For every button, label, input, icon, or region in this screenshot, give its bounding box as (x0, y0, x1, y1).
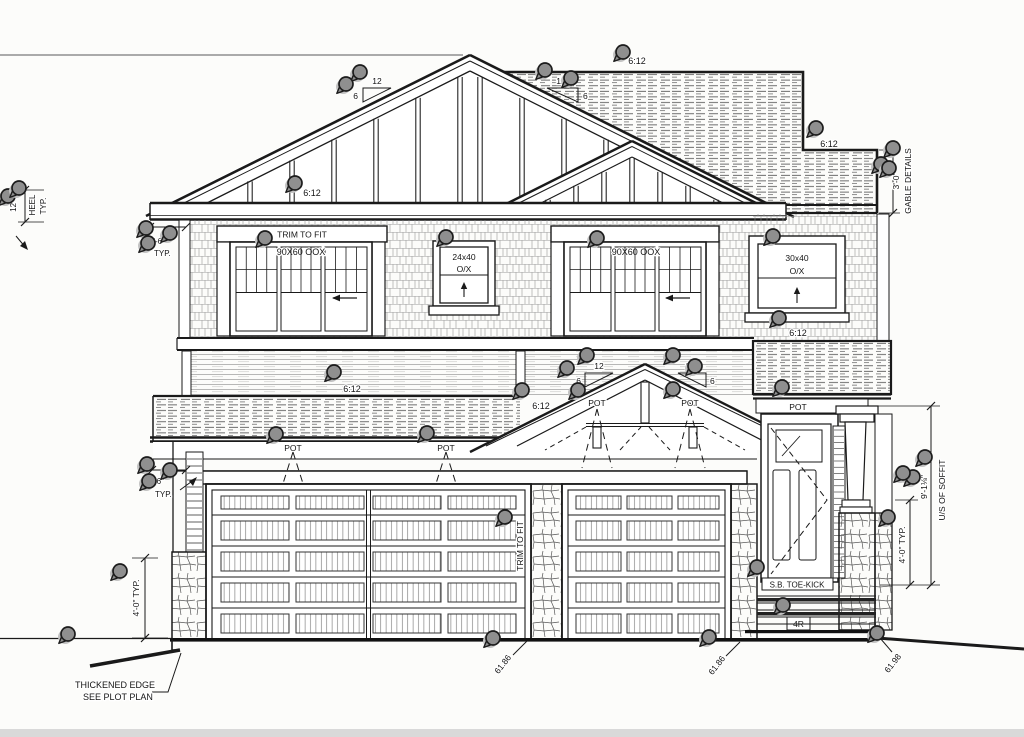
dimension-label: 4'-0" TYP. (131, 580, 141, 617)
window-size-label: 90X60 OOX (612, 247, 661, 257)
pitch-label: 6:12 (789, 328, 807, 338)
eave-fascia-band (150, 203, 786, 220)
window-30x40: 30x40 O/X (745, 236, 849, 322)
trim-to-fit-label-vertical: TRIM TO FIT (515, 521, 525, 571)
typ-label: TYP. (39, 198, 48, 215)
slope-rise-label: 6 (583, 91, 588, 101)
slope-run-label: 12 (372, 76, 382, 86)
floor-band (177, 338, 754, 350)
blueprint-canvas: 6:12 6:12 3'-0" GABLE DETAILS 6:12 12 6 … (0, 0, 1024, 737)
dimension-label: 4'-0" TYP. (897, 527, 907, 564)
garage-door-double[interactable] (206, 484, 531, 639)
bottom-edge-strip (0, 729, 1024, 737)
window-size-label: 24x40 (452, 252, 475, 262)
slope-run-label: 12 (594, 361, 604, 371)
pot-light-label: POT (437, 443, 454, 453)
window-left: TRIM TO FIT 90X60 OOX (217, 226, 387, 336)
pitch-label: 6:12 (532, 401, 550, 411)
window-24x40: 24x40 O/X (429, 241, 499, 315)
corner-board-right (877, 214, 889, 341)
pot-light-label: POT (284, 443, 301, 453)
pot-light-label: POT (789, 402, 806, 412)
pitch-label: 6:12 (820, 139, 838, 149)
pitch-label: 6:12 (303, 188, 321, 198)
window-size-label: 30x40 (785, 253, 808, 263)
corner-board-left (179, 220, 190, 338)
toe-kick-note: S.B. TOE-KICK (762, 578, 833, 590)
window-operation-label: O/X (790, 266, 805, 276)
pitch-label: 6:12 (343, 384, 361, 394)
slope-rise-label: 6 (710, 376, 715, 386)
gable-details-label: GABLE DETAILS (903, 148, 913, 214)
pot-light-label: POT (681, 398, 698, 408)
heel-label: HEEL (28, 194, 37, 215)
window-operation-label: O/X (457, 264, 472, 274)
garage-door-single[interactable] (562, 484, 731, 639)
slope-rise-label: 6 (353, 91, 358, 101)
typ-label: TYP. (155, 490, 172, 499)
pot-light-label: POT (588, 398, 605, 408)
toe-kick-label: S.B. TOE-KICK (770, 581, 825, 590)
gable-height-label: 3'-0" (891, 173, 901, 190)
soffit-note-label: U/S OF SOFFIT (937, 460, 947, 521)
entry-door[interactable] (761, 414, 845, 582)
elevation-drawing: 6:12 6:12 3'-0" GABLE DETAILS 6:12 12 6 … (0, 0, 1024, 737)
thickened-edge-note: SEE PLOT PLAN (83, 692, 153, 702)
stone-pier-center (531, 484, 562, 639)
trim-to-fit-label: TRIM TO FIT (277, 230, 327, 240)
thickened-edge-note: THICKENED EDGE (75, 680, 155, 690)
typ-label: TYP. (154, 249, 171, 258)
pitch-label: 6:12 (628, 56, 646, 66)
